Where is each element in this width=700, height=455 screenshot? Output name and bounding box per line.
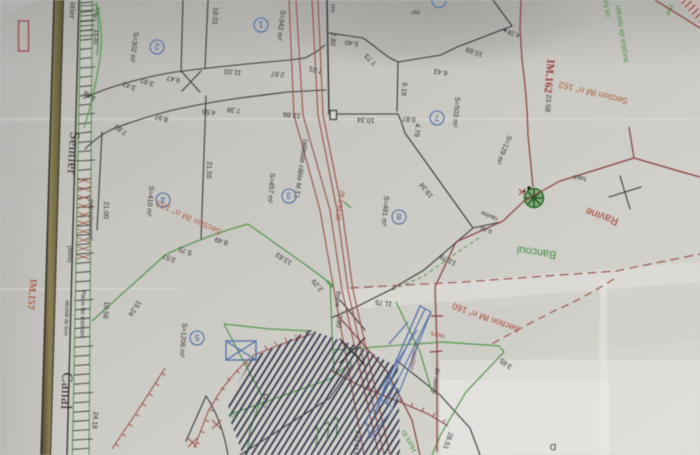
svg-text:2.80: 2.80	[328, 32, 336, 46]
svg-text:m²: m²	[411, 7, 421, 15]
svg-text:4.56: 4.56	[202, 107, 216, 115]
svg-text:10.56: 10.56	[101, 301, 109, 319]
svg-text:8.18: 8.18	[400, 82, 408, 96]
svg-text:24.18: 24.18	[90, 411, 98, 429]
svg-text:21.55: 21.55	[205, 161, 213, 179]
svg-text:7.38: 7.38	[227, 105, 241, 113]
svg-text:7: 7	[434, 113, 439, 123]
svg-text:Canal: Canal	[57, 372, 74, 410]
svg-text:E⌐: E⌐	[227, 410, 237, 418]
svg-text:4.79: 4.79	[412, 123, 420, 137]
svg-text:2.87: 2.87	[271, 69, 285, 77]
svg-text:Sentier: Sentier	[64, 131, 82, 175]
svg-text:cm: cm	[329, 4, 337, 13]
svg-text:(encochement): (encochement)	[87, 199, 95, 240]
svg-text:8: 8	[396, 212, 401, 222]
svg-text:ntier: ntier	[67, 2, 78, 19]
svg-text:5: 5	[194, 333, 199, 343]
svg-text:18.01: 18.01	[211, 7, 219, 25]
svg-text:2: 2	[154, 42, 159, 52]
svg-text:Pieux fer existant: Pieux fer existant	[79, 290, 87, 338]
svg-text:10.34: 10.34	[357, 115, 375, 123]
svg-text:1: 1	[258, 20, 263, 30]
svg-text:(terre): (terre)	[66, 246, 74, 263]
svg-text:0.87: 0.87	[402, 115, 416, 123]
svg-text:décédé de 6cm: décédé de 6cm	[62, 300, 69, 336]
svg-text:21.00: 21.00	[102, 201, 110, 219]
svg-text:3: 3	[286, 191, 291, 201]
svg-text:2.80: 2.80	[334, 314, 342, 328]
